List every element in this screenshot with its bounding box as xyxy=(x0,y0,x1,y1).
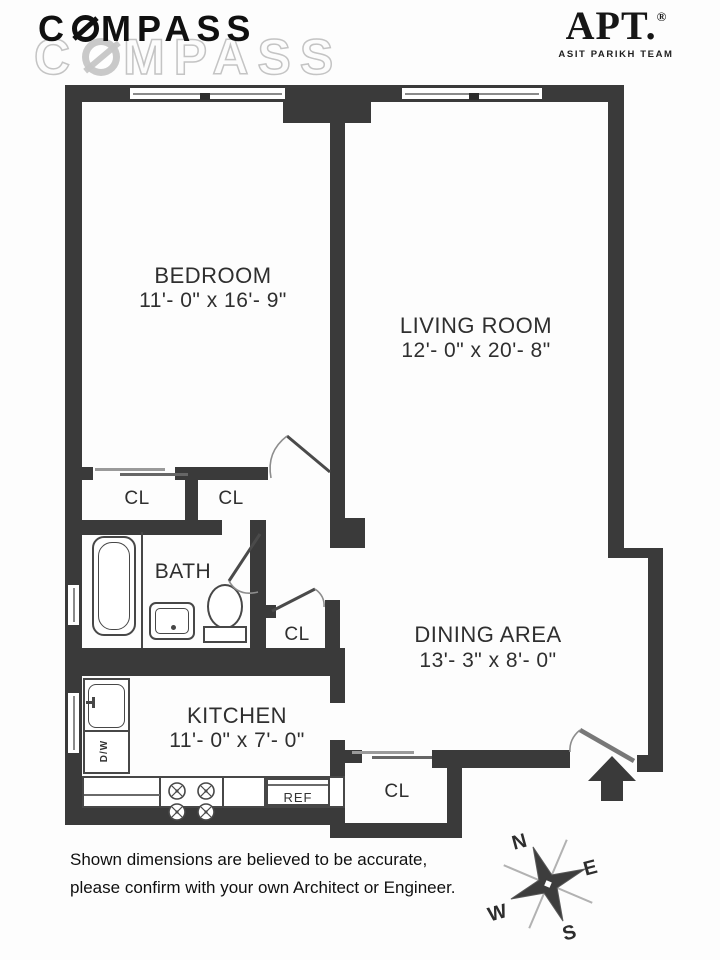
compass-label-e: E xyxy=(581,856,600,881)
compass-label-s: S xyxy=(560,921,579,946)
dishwasher-label: D/W xyxy=(99,729,113,773)
bedroom-door xyxy=(270,436,330,478)
compass-needle-icon xyxy=(72,16,98,40)
wall-closet-row-mid xyxy=(175,467,268,480)
living-room-label: LIVING ROOM xyxy=(400,313,552,339)
wall-between-closets xyxy=(185,480,198,522)
sink-drain-dot xyxy=(171,625,176,630)
window-pane-line xyxy=(73,696,75,750)
floorplan-page: D/W REF xyxy=(0,0,720,960)
wall-divider-foot xyxy=(330,518,365,548)
refrigerator-line xyxy=(268,784,328,786)
bedroom-dimensions: 11'- 0" x 16'- 9" xyxy=(139,289,287,313)
window-tick xyxy=(469,93,479,100)
disclaimer-line-2: please confirm with your own Architect o… xyxy=(70,874,456,902)
kitchen-dimensions: 11'- 0" x 7'- 0" xyxy=(169,729,305,753)
wall-kitchen-south xyxy=(65,808,345,825)
registered-mark-icon: ® xyxy=(657,9,667,24)
toilet-tank xyxy=(203,626,247,643)
disclaimer-text: Shown dimensions are believed to be accu… xyxy=(70,846,456,901)
tub-surround-line xyxy=(141,532,143,648)
closet-sliding-door xyxy=(95,468,165,471)
wall-bedroom-living-divider xyxy=(330,120,345,520)
wall-entry-corner xyxy=(637,755,663,772)
entry-arrow-icon xyxy=(588,756,636,801)
compass-label-w: W xyxy=(485,900,509,926)
dining-area-dimensions: 13'- 3" x 8'- 0" xyxy=(419,649,556,673)
wall-left-upper xyxy=(65,85,82,585)
wall-mid-closet-stub xyxy=(262,605,276,618)
closet-label: CL xyxy=(284,624,309,646)
kitchen-label: KITCHEN xyxy=(187,703,287,729)
apt-logo-text: APT. xyxy=(566,3,657,48)
window-tick xyxy=(200,93,210,100)
closet-label: CL xyxy=(384,781,409,803)
bath-sink-basin xyxy=(155,608,189,634)
apt-logo: APT.® ASIT PARIKH TEAM xyxy=(552,6,680,60)
disclaimer-line-1: Shown dimensions are believed to be accu… xyxy=(70,846,456,874)
bath-window xyxy=(65,585,82,625)
faucet xyxy=(92,697,95,708)
window-pane-line xyxy=(73,588,75,622)
wall-bottom-closet-south xyxy=(330,823,462,838)
closet-sliding-door xyxy=(120,473,188,476)
toilet-bowl xyxy=(207,584,243,629)
wall-closet-row-left xyxy=(65,467,93,480)
compass-logo: CMPASS xyxy=(38,8,256,50)
compass-logo-o-icon xyxy=(72,15,99,42)
closet-sliding-door xyxy=(372,756,432,759)
bath-label: BATH xyxy=(155,560,211,584)
bedroom-label: BEDROOM xyxy=(154,263,271,289)
closet-label: CL xyxy=(218,488,243,510)
closet-sliding-door xyxy=(352,751,414,754)
compass-star xyxy=(496,832,600,936)
wall-kitchen-east-upper xyxy=(330,648,345,703)
compass-rose: N E W S xyxy=(485,830,600,946)
apt-team-text: ASIT PARIKH TEAM xyxy=(552,49,680,60)
mid-closet-door xyxy=(272,589,324,611)
compass-label-n: N xyxy=(510,830,530,855)
wall-right-lower xyxy=(648,548,663,755)
wall-bath-north xyxy=(65,520,222,535)
closet-label: CL xyxy=(124,488,149,510)
dining-area-label: DINING AREA xyxy=(414,622,561,648)
bathtub-inner xyxy=(98,542,130,630)
wall-bath-kitchen-south xyxy=(65,648,345,676)
living-room-dimensions: 12'- 0" x 20'- 8" xyxy=(401,339,550,363)
wall-top-pillar xyxy=(283,85,371,123)
entry-door xyxy=(570,730,634,761)
counter-divider xyxy=(222,778,224,806)
counter-divider xyxy=(159,778,161,806)
counter-midline xyxy=(84,794,160,796)
kitchen-window xyxy=(65,693,82,753)
wall-right-upper xyxy=(608,85,624,548)
refrigerator-label: REF xyxy=(266,790,330,805)
